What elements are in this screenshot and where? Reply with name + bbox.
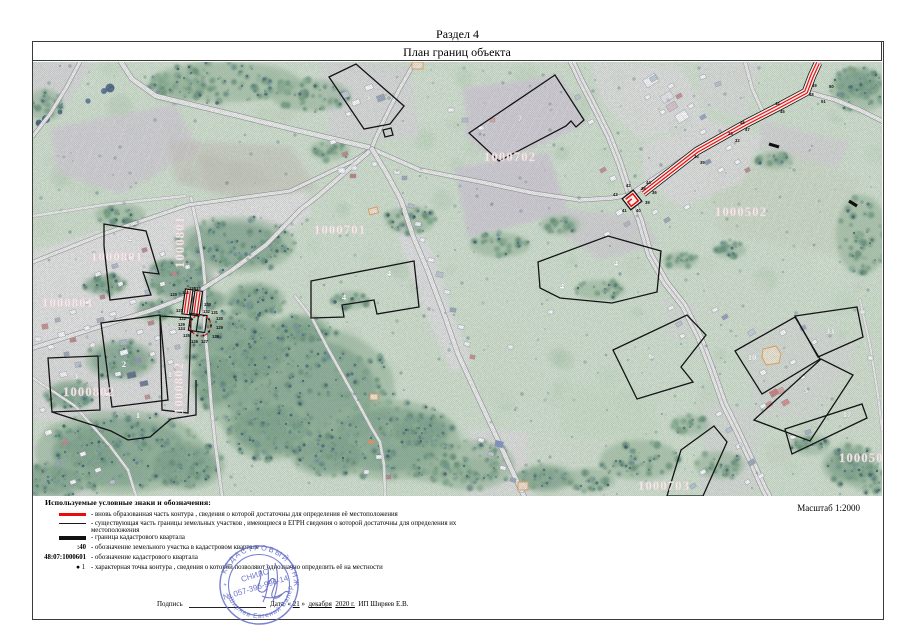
- svg-text:47: 47: [745, 127, 750, 132]
- svg-text:132: 132: [203, 309, 211, 314]
- svg-text:1000802: 1000802: [63, 385, 115, 399]
- svg-text:36: 36: [652, 190, 657, 195]
- svg-text:1000801: 1000801: [173, 216, 187, 268]
- svg-text:127: 127: [201, 339, 209, 344]
- svg-text:130: 130: [204, 302, 212, 307]
- svg-text:43: 43: [613, 192, 618, 197]
- svg-text:122: 122: [179, 316, 187, 321]
- svg-text:138: 138: [212, 334, 220, 339]
- svg-text:1000702: 1000702: [484, 150, 536, 164]
- svg-text:33: 33: [728, 131, 733, 136]
- svg-text:48: 48: [809, 92, 814, 97]
- svg-text:33: 33: [826, 326, 835, 336]
- svg-text:131: 131: [211, 310, 219, 315]
- svg-text:46: 46: [740, 120, 745, 125]
- svg-text:121: 121: [176, 308, 184, 313]
- svg-text:1: 1: [168, 369, 172, 379]
- svg-text:10: 10: [748, 352, 757, 362]
- svg-text:1000801: 1000801: [91, 250, 143, 264]
- svg-text:40: 40: [636, 208, 641, 213]
- svg-text:51: 51: [821, 99, 826, 104]
- svg-text:129: 129: [216, 325, 224, 330]
- svg-text:32: 32: [735, 138, 740, 143]
- svg-text:+: +: [223, 582, 229, 589]
- svg-text:45: 45: [780, 109, 785, 114]
- svg-text:5: 5: [366, 92, 370, 102]
- svg-text:41: 41: [622, 208, 627, 213]
- svg-text:38: 38: [641, 186, 646, 191]
- svg-text:49: 49: [812, 83, 817, 88]
- svg-text:6: 6: [649, 351, 653, 361]
- svg-text:39: 39: [645, 200, 650, 205]
- svg-text:125: 125: [183, 333, 191, 338]
- svg-text:113: 113: [194, 286, 201, 291]
- svg-text:120: 120: [170, 292, 178, 297]
- svg-text:3: 3: [74, 371, 78, 381]
- svg-text:124: 124: [178, 326, 186, 331]
- svg-text:2: 2: [122, 359, 126, 369]
- svg-text:5: 5: [804, 385, 808, 395]
- svg-text:1000802: 1000802: [172, 362, 186, 414]
- svg-text:1000502: 1000502: [715, 205, 767, 219]
- svg-text:1000502: 1000502: [839, 451, 882, 465]
- svg-text:2: 2: [128, 233, 132, 243]
- svg-text:17: 17: [843, 409, 852, 419]
- svg-text:126: 126: [191, 339, 199, 344]
- svg-text:1000703: 1000703: [638, 479, 690, 493]
- svg-text:42: 42: [626, 183, 631, 188]
- svg-text:1000801: 1000801: [42, 296, 94, 310]
- svg-text:34: 34: [694, 154, 699, 159]
- svg-text:35: 35: [700, 160, 705, 165]
- svg-text:1: 1: [136, 410, 140, 420]
- svg-text:130: 130: [216, 316, 224, 321]
- svg-text:1000701: 1000701: [314, 223, 366, 237]
- svg-text:44: 44: [646, 180, 651, 185]
- svg-text:44: 44: [775, 101, 780, 106]
- svg-text:50: 50: [829, 84, 834, 89]
